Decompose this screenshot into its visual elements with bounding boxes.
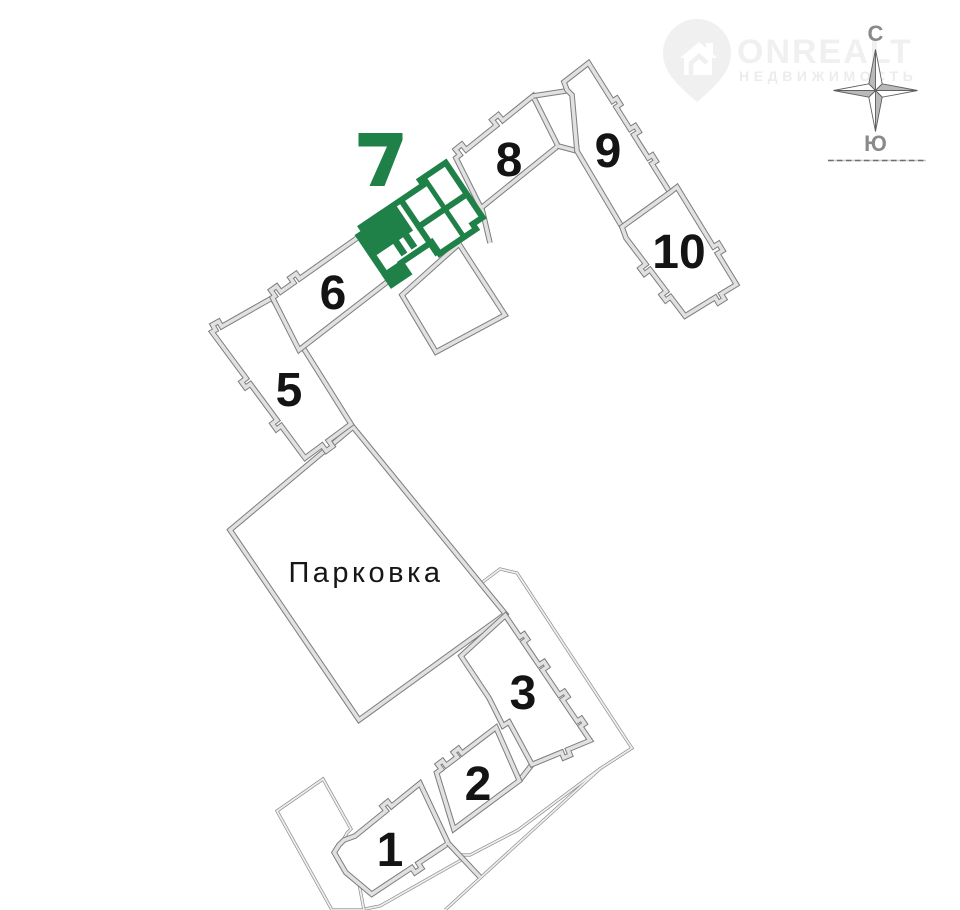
svg-text:2: 2 [465,758,492,811]
svg-text:С: С [868,21,884,46]
svg-text:9: 9 [595,125,622,178]
svg-text:5: 5 [276,364,303,417]
svg-text:8: 8 [496,134,523,187]
svg-text:10: 10 [652,226,705,279]
svg-text:Ю: Ю [864,131,887,156]
svg-text:6: 6 [320,267,347,320]
svg-text:НЕДВИЖИМОСТЬ: НЕДВИЖИМОСТЬ [739,68,917,84]
svg-text:Парковка: Парковка [288,557,443,589]
svg-text:3: 3 [510,667,537,720]
svg-text:1: 1 [377,824,404,877]
svg-text:ONREALT: ONREALT [737,33,913,71]
